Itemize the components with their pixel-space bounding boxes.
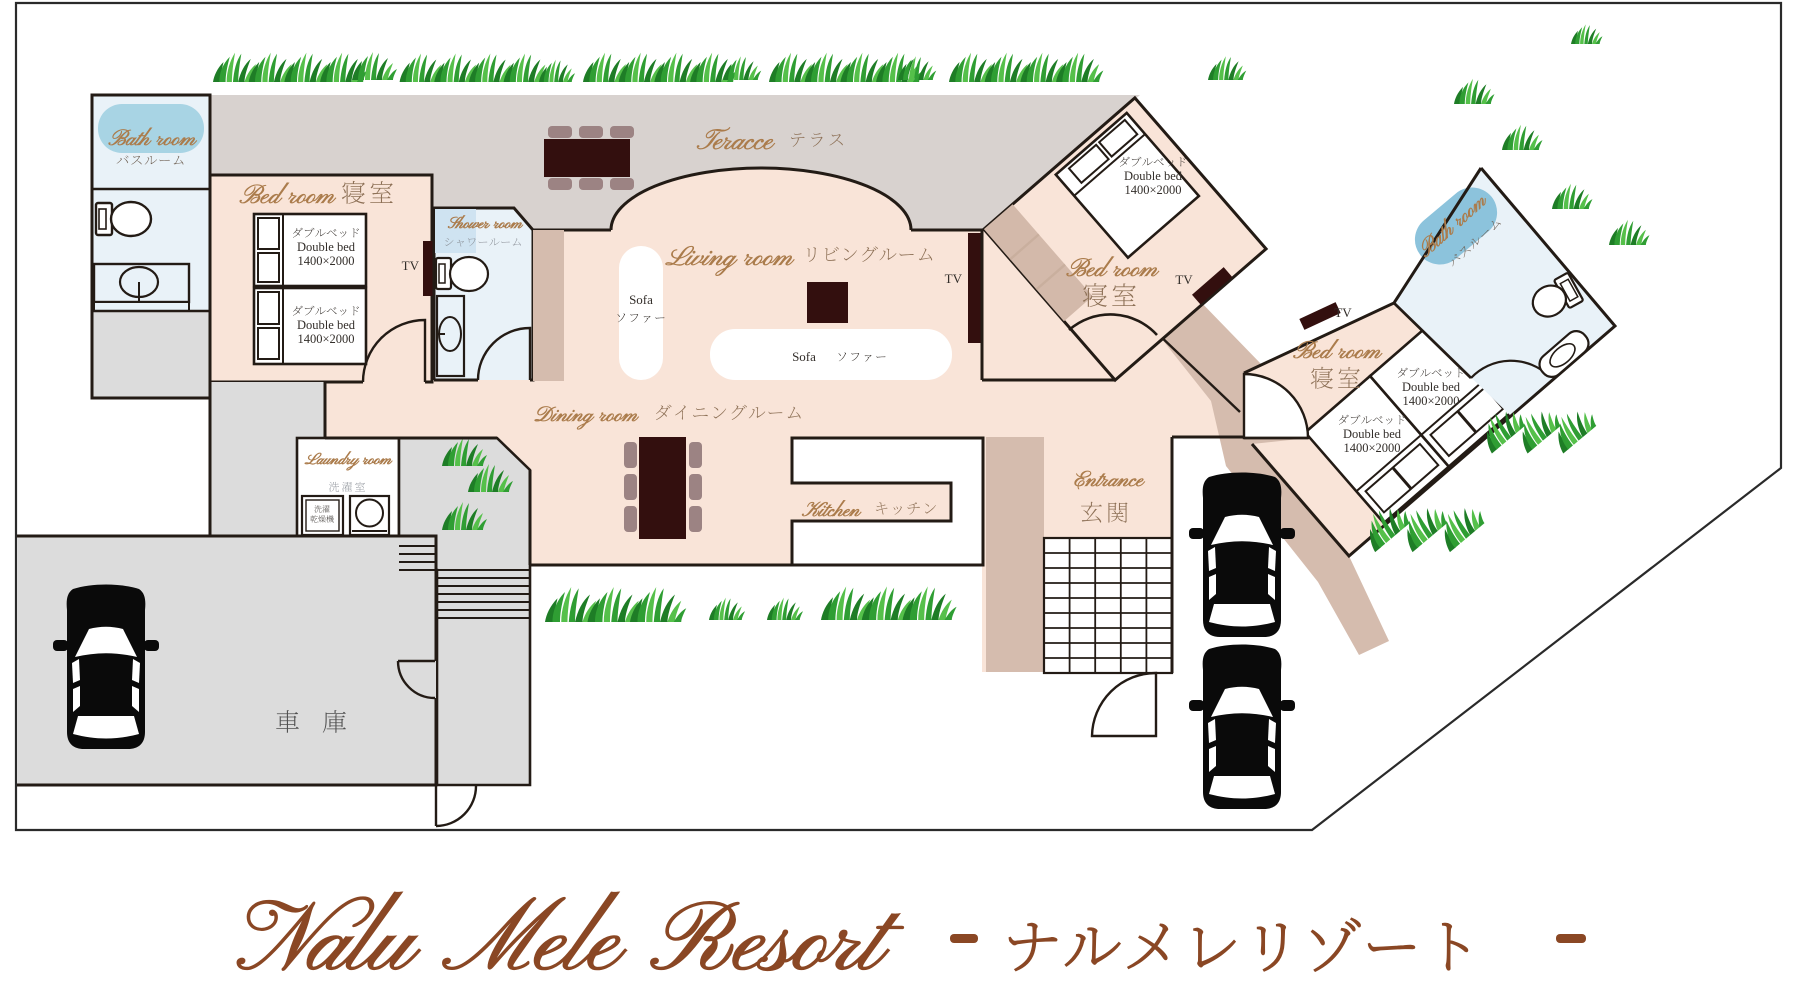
svg-text:Sofa: Sofa bbox=[792, 349, 816, 364]
svg-text:TV: TV bbox=[945, 271, 963, 286]
svg-text:TV: TV bbox=[1175, 272, 1193, 287]
svg-text:Sofa: Sofa bbox=[629, 292, 653, 307]
svg-text:TV: TV bbox=[402, 258, 420, 273]
svg-text:TV: TV bbox=[1334, 305, 1352, 320]
